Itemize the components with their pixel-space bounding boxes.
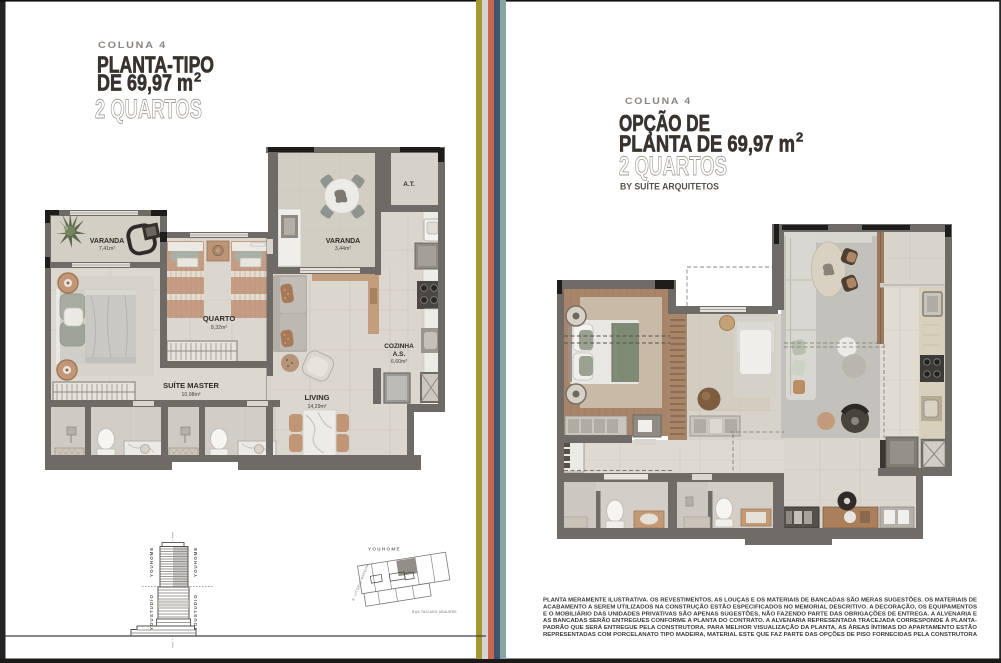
svg-text:E O MOBILIÁRIO DAS UNIDADES PR: E O MOBILIÁRIO DAS UNIDADES PRIVATIVAS S… bbox=[543, 610, 977, 617]
svg-text:SUÍTE MASTER: SUÍTE MASTER bbox=[163, 381, 219, 390]
svg-text:2: 2 bbox=[796, 130, 803, 145]
svg-text:QUARTO: QUARTO bbox=[203, 314, 236, 323]
svg-text:YOUHOME: YOUHOME bbox=[368, 547, 401, 552]
svg-text:2 QUARTOS: 2 QUARTOS bbox=[619, 151, 727, 181]
svg-text:2 QUARTOS: 2 QUARTOS bbox=[95, 94, 202, 124]
svg-text:7,41m²: 7,41m² bbox=[99, 246, 115, 252]
svg-text:YOUHOME: YOUHOME bbox=[193, 547, 198, 577]
svg-text:6,60m²: 6,60m² bbox=[391, 359, 407, 365]
svg-text:REPRESENTADAS COM PORCELANATO: REPRESENTADAS COM PORCELANATO TIPO MADEI… bbox=[543, 631, 977, 638]
svg-text:PADRÃO QUE SERÁ ENTREGUE PELA: PADRÃO QUE SERÁ ENTREGUE PELA CONSTRUTOR… bbox=[543, 623, 977, 631]
svg-text:AS BANCADAS SERÃO ENTREGUES CO: AS BANCADAS SERÃO ENTREGUES CONFORME A P… bbox=[543, 617, 977, 624]
svg-text:DE 69,97 m: DE 69,97 m bbox=[97, 70, 193, 96]
svg-text:2: 2 bbox=[194, 70, 201, 85]
svg-text:YOUHOME: YOUHOME bbox=[149, 547, 154, 577]
svg-text:10,98m²: 10,98m² bbox=[181, 392, 200, 398]
svg-text:VARANDA: VARANDA bbox=[326, 238, 360, 245]
svg-text:A.S.: A.S. bbox=[393, 351, 406, 358]
svg-text:COLUNA 4: COLUNA 4 bbox=[625, 96, 692, 107]
svg-text:YOUSTUDIO: YOUSTUDIO bbox=[149, 594, 154, 630]
svg-text:LIVING: LIVING bbox=[304, 393, 329, 402]
svg-text:COLUNA 4: COLUNA 4 bbox=[98, 40, 167, 51]
svg-text:BY SUÍTE ARQUITETOS: BY SUÍTE ARQUITETOS bbox=[620, 182, 719, 192]
svg-text:8,32m²: 8,32m² bbox=[211, 325, 227, 331]
svg-text:VARANDA: VARANDA bbox=[90, 238, 124, 245]
svg-text:3,44m²: 3,44m² bbox=[335, 246, 351, 252]
svg-text:ACABAMENTO A SEREM UTILIZADOS: ACABAMENTO A SEREM UTILIZADOS NA CONSTRU… bbox=[543, 603, 977, 610]
svg-text:RUA TACIANO ABAURRE: RUA TACIANO ABAURRE bbox=[412, 610, 457, 614]
svg-text:PLANTA MERAMENTE ILUSTRATIVA.: PLANTA MERAMENTE ILUSTRATIVA. OS REVESTI… bbox=[543, 597, 977, 604]
svg-text:COZINHA: COZINHA bbox=[384, 343, 414, 350]
svg-text:14,29m²: 14,29m² bbox=[307, 404, 326, 410]
svg-text:A.T.: A.T. bbox=[403, 181, 415, 188]
svg-text:YOUSTUDIO: YOUSTUDIO bbox=[193, 594, 198, 630]
